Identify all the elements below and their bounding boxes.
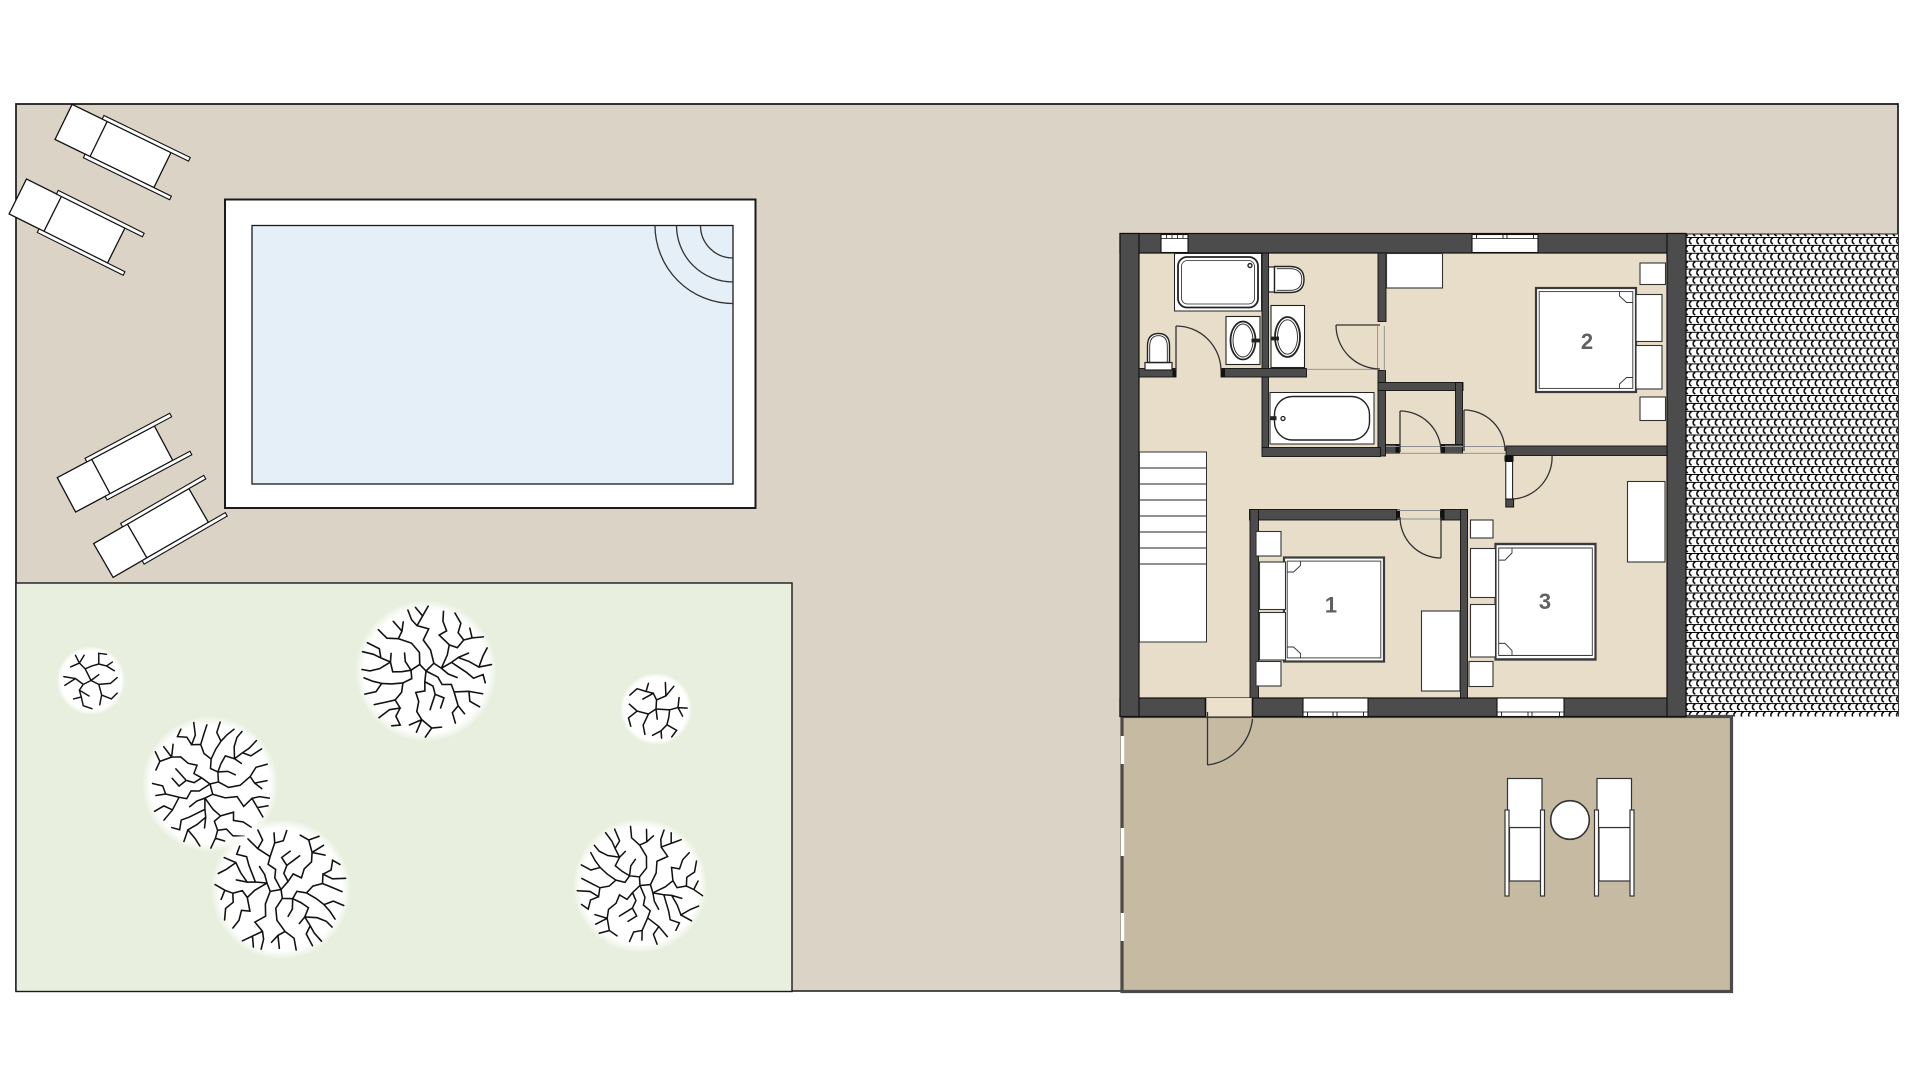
svg-text:2: 2 [1581,329,1593,354]
svg-text:1: 1 [1325,593,1337,618]
svg-text:3: 3 [1539,589,1551,614]
